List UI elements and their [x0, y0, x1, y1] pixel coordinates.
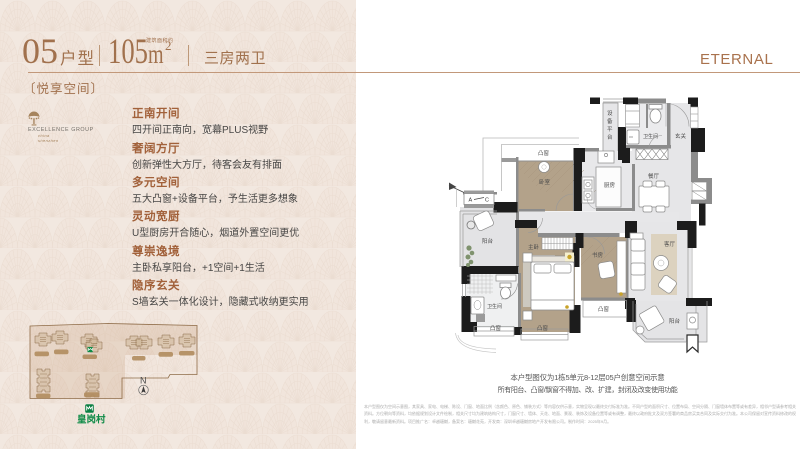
svg-text:阳台: 阳台 [669, 317, 681, 325]
svg-text:卫生间: 卫生间 [643, 133, 658, 140]
svg-text:A: A [469, 198, 473, 204]
svg-text:C: C [485, 198, 489, 204]
svg-text:卫生间: 卫生间 [487, 303, 502, 310]
svg-text:N: N [140, 376, 147, 386]
svg-text:卧室: 卧室 [539, 178, 551, 186]
svg-text:凸窗: 凸窗 [537, 324, 549, 332]
svg-text:厨房: 厨房 [604, 181, 616, 189]
svg-text:阳台: 阳台 [482, 237, 494, 245]
svg-text:餐厅: 餐厅 [648, 172, 660, 180]
svg-text:设: 设 [607, 109, 613, 117]
svg-text:凸窗: 凸窗 [538, 149, 550, 157]
svg-text:书房: 书房 [592, 251, 604, 259]
svg-text:备: 备 [607, 117, 613, 125]
svg-text:皇岗村: 皇岗村 [77, 414, 106, 426]
svg-text:凸窗: 凸窗 [598, 305, 610, 313]
svg-text:平: 平 [607, 126, 613, 133]
svg-text:凸窗: 凸窗 [490, 324, 502, 332]
svg-text:台: 台 [607, 133, 613, 141]
svg-text:客厅: 客厅 [664, 240, 676, 248]
svg-text:主卧: 主卧 [528, 243, 540, 251]
svg-text:玄关: 玄关 [675, 132, 687, 140]
